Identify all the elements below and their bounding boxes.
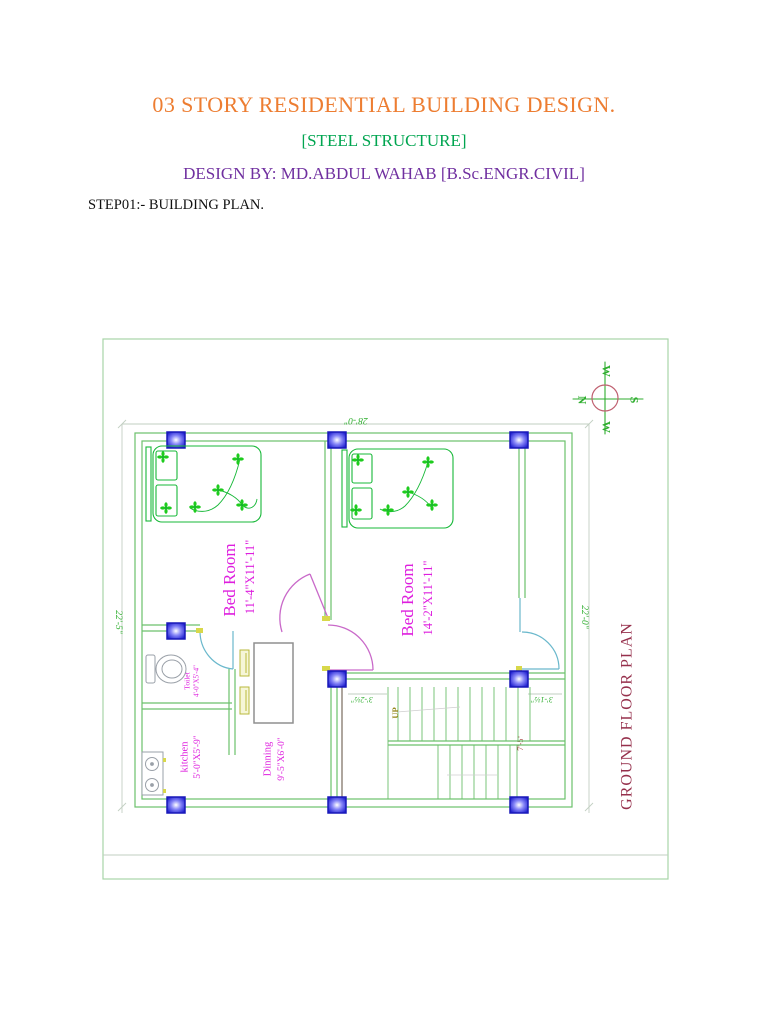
double-door-arc-lower [328,625,373,670]
compass-s: S [627,397,641,404]
dim-right: 22'-0" [579,605,589,629]
kitchen-size: 5'-0"X5'-9" [193,735,203,778]
door-hinge-mark [196,628,203,633]
flower [212,484,224,496]
column [510,432,528,448]
bedroom1-label: Bed Room [220,543,239,616]
bedroom2-label: Bed Room [398,563,417,636]
dim-stair-left: 3'-2½" [350,695,373,704]
toilet-label: Toilet [183,671,192,689]
dimension-lines [103,420,668,855]
stair-guide-line-up [397,707,460,712]
dining-chairs [240,650,249,714]
double-door-arc-upper [280,574,310,632]
column [328,671,346,687]
dining-label: Dinning [262,741,273,776]
toilet-door-arc [200,631,233,669]
flower [232,453,244,465]
stairs-up-label: UP [390,707,400,718]
flower [402,486,414,498]
column [167,797,185,813]
flower [352,454,364,466]
column [167,623,185,639]
stairs [388,687,530,799]
column [328,432,346,448]
column [328,797,346,813]
kitchen-stove [142,752,166,795]
floor-plan-drawing: N S W W 28'-0" 22'-5" 22'-0" 3'-2½" 3'-1… [0,0,768,1024]
dining-table [240,643,293,723]
compass-n: N [575,396,589,405]
flower [426,499,438,511]
bedroom1-size: 11'-4"X11'-11" [243,540,257,614]
flower [382,504,394,516]
column [510,671,528,687]
dim-left: 22'-5" [113,610,123,634]
door-hinge-mark [322,616,330,621]
compass-w-top: W [599,365,613,377]
compass: N S W W [573,362,643,434]
compass-w-bottom: W [599,421,613,433]
flower [160,502,172,514]
dim-stair-right: 3'-1½" [530,695,553,704]
flower [157,451,169,463]
interior-walls [142,441,565,799]
dim-top: 28'-0" [343,415,367,425]
right-door-arc [522,632,559,669]
bedroom2-size: 14'-2"X11'-11" [421,561,435,636]
flower [422,456,434,468]
flower [236,499,248,511]
dining-size: 9'-5"X6'-0" [277,737,287,780]
kitchen-label: kitchen [179,741,190,773]
toilet-fixture [146,655,186,683]
toilet-size: 4'-0"X5'-4" [193,665,201,697]
plan-title: GROUND FLOOR PLAN [619,622,636,810]
column [510,797,528,813]
